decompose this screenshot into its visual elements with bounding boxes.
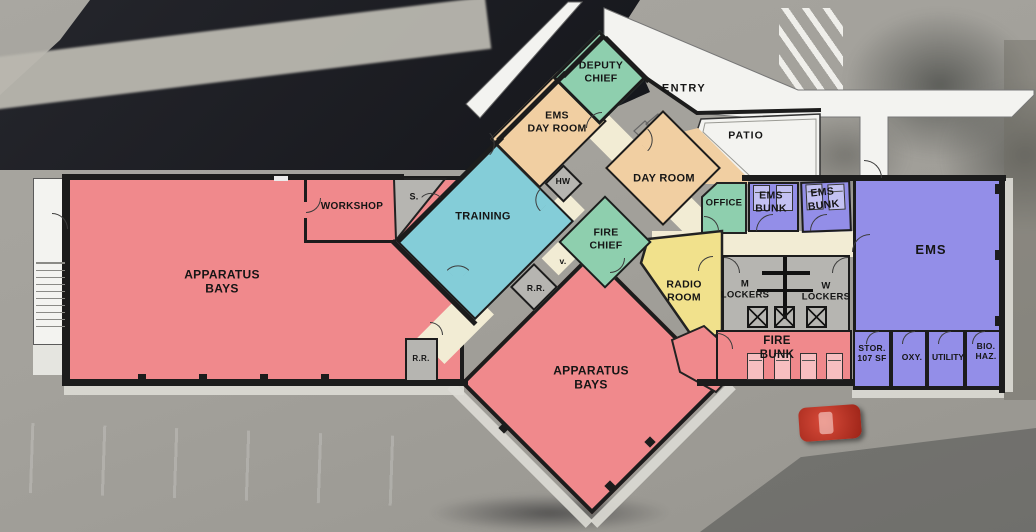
room-label-oxygen: OXY.	[902, 352, 923, 362]
wall-notch	[274, 176, 288, 181]
room-label-storage-s: S.	[409, 192, 418, 203]
bed	[826, 353, 843, 380]
room-label-day-room: DAY ROOM	[633, 172, 695, 185]
room-label-patio: PATIO	[728, 130, 764, 143]
room-label-bio-hazard: BIO. HAZ.	[975, 341, 996, 361]
room-label-w-lockers: W LOCKERS	[802, 281, 851, 304]
room-label-office: OFFICE	[706, 197, 743, 208]
stair-treads	[36, 262, 65, 328]
workshop-wall-bottom	[304, 240, 396, 243]
room-label-deputy-chief: DEPUTY CHIEF	[579, 59, 623, 84]
shower-stall	[806, 306, 827, 328]
room-label-ems-day-room: EMS DAY ROOM	[528, 109, 587, 134]
room-label-ems-bunk-1: EMS BUNK	[755, 189, 787, 214]
room-label-radio-room: RADIO ROOM	[666, 278, 701, 303]
fire-station-floor-plan: APPARATUS BAYS APPARATUS BAYS WORKSHOP S…	[0, 0, 1036, 532]
column-mark	[138, 374, 146, 382]
bed	[800, 353, 817, 380]
room-label-ems-bunk-2: EMS BUNK	[806, 185, 840, 213]
room-label-apparatus-bays-south: APPARATUS BAYS	[553, 364, 629, 393]
room-label-utility: UTILITY	[932, 352, 964, 362]
wall-west-top	[62, 174, 404, 180]
column-mark	[199, 374, 207, 382]
column-mark	[321, 374, 329, 382]
column-mark	[995, 250, 1001, 260]
shower-stall	[774, 306, 795, 328]
room-label-storage-107: STOR. 107 SF	[857, 343, 886, 363]
room-label-restroom-center: R.R.	[527, 283, 545, 293]
workshop-wall-left2	[304, 218, 307, 242]
room-label-workshop: WORKSHOP	[321, 201, 383, 213]
room-label-ems: EMS	[915, 242, 946, 258]
room-label-hot-water: HW	[556, 176, 571, 186]
room-label-training: TRAINING	[455, 210, 511, 223]
room-label-entry: ENTRY	[662, 82, 706, 95]
column-mark	[995, 316, 1001, 326]
room-label-vestibule: v.	[559, 256, 566, 266]
column-mark	[995, 184, 1001, 194]
column-mark	[260, 374, 268, 382]
room-label-apparatus-bays-west: APPARATUS BAYS	[184, 268, 260, 297]
room-label-restroom-west: R.R.	[412, 354, 429, 364]
shower-stall	[747, 306, 768, 328]
room-label-fire-chief: FIRE CHIEF	[590, 226, 623, 251]
room-label-m-lockers: M LOCKERS	[721, 279, 770, 302]
room-label-fire-bunk: FIRE BUNK	[760, 335, 794, 363]
